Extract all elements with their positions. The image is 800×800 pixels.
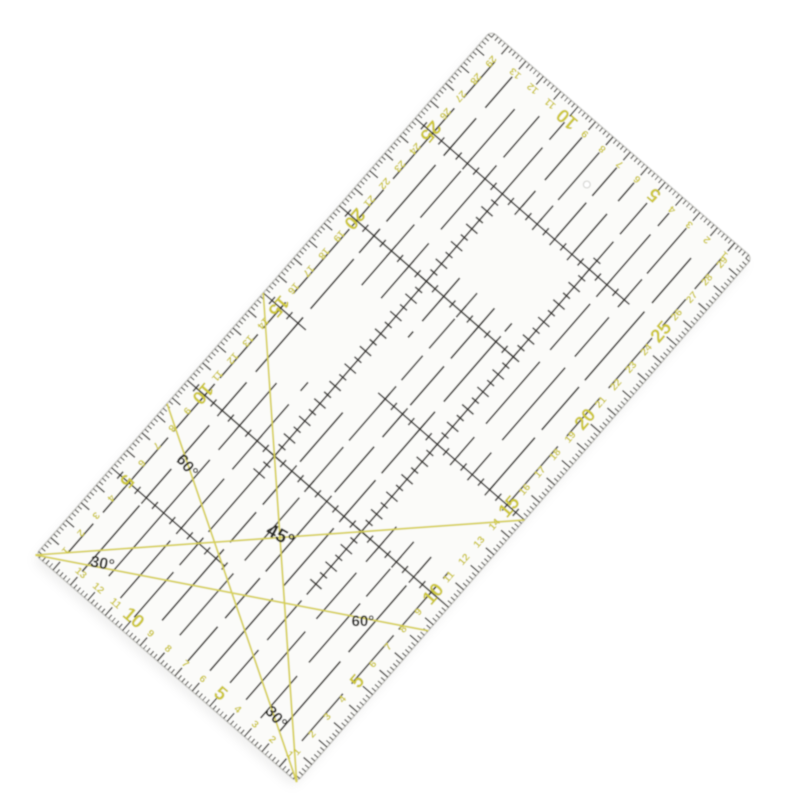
svg-text:60°: 60° — [352, 613, 375, 630]
